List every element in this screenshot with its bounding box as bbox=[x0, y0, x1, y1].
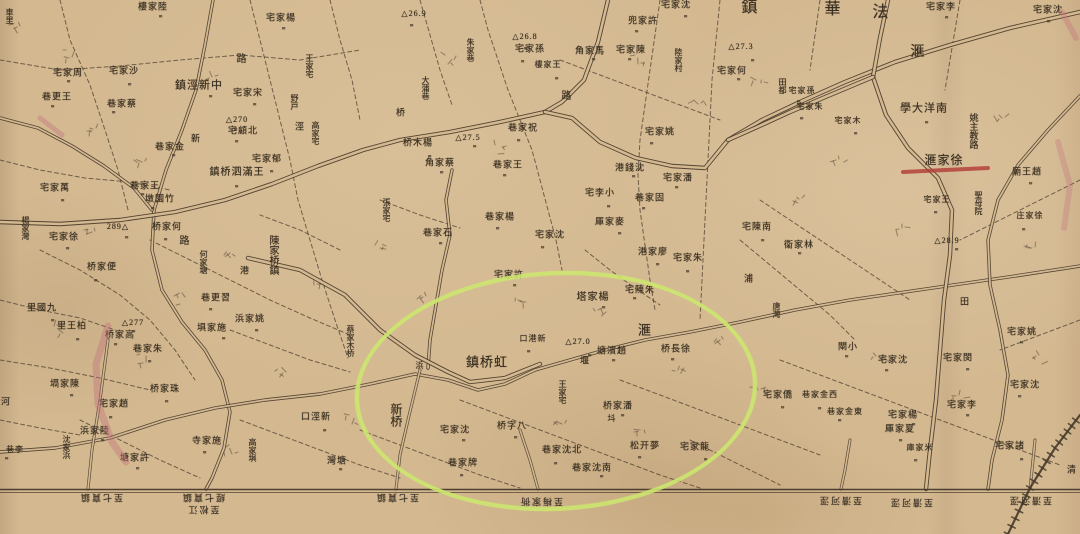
map-label: 宅家王 bbox=[924, 196, 951, 204]
map-label: 宅家朱 bbox=[673, 254, 703, 263]
map-label: 巷家固 bbox=[635, 194, 665, 203]
map-label: 巷家金 bbox=[155, 143, 185, 152]
map-label: 沈家浜 bbox=[62, 435, 70, 459]
map-label: 庄家徐 bbox=[1017, 212, 1044, 220]
map-label: 巷更習 bbox=[201, 294, 231, 303]
map-label: 宅家徐 bbox=[49, 233, 79, 242]
map-label: 桥家潘 bbox=[603, 402, 633, 411]
map-label: 巷更王 bbox=[42, 93, 72, 102]
map-label: 閘小 bbox=[838, 343, 858, 352]
map-label: 宅家許 bbox=[494, 271, 524, 280]
map-label: 巷家石 bbox=[423, 229, 453, 238]
map-label: 里王柏 bbox=[57, 322, 87, 331]
map-label: 港家廖 bbox=[638, 248, 668, 257]
map-label: △26.9 bbox=[401, 10, 426, 18]
map-label: 宅家陳 bbox=[616, 46, 646, 55]
map-scan: 車里樓家陸宅家楊△26.9宅家孫樓家王角家馬宅家陳兜家許宅家沈陸家村鎮華法宅家李… bbox=[0, 0, 1080, 534]
map-label: 庫家米 bbox=[907, 444, 934, 452]
map-label: 華 bbox=[824, 2, 841, 18]
map-label: 巷家王 bbox=[130, 182, 160, 191]
map-label: 王家宅 bbox=[558, 380, 566, 404]
map-label: 桥 bbox=[396, 109, 406, 118]
map-label: 學大洋南 bbox=[900, 104, 948, 115]
map-label: 宅家僑 bbox=[763, 391, 793, 400]
map-label: 巷李 bbox=[6, 446, 24, 454]
map-label: 鎮 bbox=[741, 0, 758, 16]
map-label: 新 bbox=[191, 135, 201, 144]
map-label: 鎮涇新中 bbox=[175, 81, 223, 92]
map-label: 宅家沈 bbox=[878, 356, 908, 365]
map-label: 清 bbox=[1067, 466, 1077, 475]
margin-destination-label: 至松江 bbox=[186, 505, 219, 514]
map-label: 塥家陳 bbox=[50, 380, 80, 389]
map-label: 王家宅 bbox=[305, 54, 313, 78]
map-label: 宅家萬 bbox=[40, 184, 70, 193]
map-label: 宅家趙 bbox=[99, 400, 129, 409]
map-label: 車里 bbox=[5, 8, 13, 24]
map-label: 厙家夏 bbox=[885, 425, 915, 434]
map-label: 何家塘 bbox=[199, 250, 207, 274]
map-label: 松开夢 bbox=[630, 442, 660, 451]
map-label: 宅家沈 bbox=[535, 231, 565, 240]
margin-destination-label: 經七寶鎮 bbox=[181, 493, 225, 502]
map-label: 巷家沈北 bbox=[542, 446, 582, 455]
map-label: 樓家陸 bbox=[138, 3, 168, 12]
map-label: 塔家楊 bbox=[577, 293, 610, 303]
map-label: 宅李小 bbox=[585, 189, 615, 198]
map-label: 浜 bbox=[416, 362, 425, 370]
map-label: 路 bbox=[180, 237, 191, 247]
map-label: 田 bbox=[960, 298, 970, 307]
map-label: 宅家沈 bbox=[440, 426, 470, 435]
map-label: 宅陳南 bbox=[742, 223, 772, 232]
map-label: 宅家木 bbox=[835, 117, 862, 125]
map-label: 港錢沈 bbox=[615, 164, 645, 173]
map-label: 涇 bbox=[295, 123, 305, 132]
map-label: △277 bbox=[122, 319, 144, 327]
map-label: 鎮桥虹 bbox=[466, 356, 508, 369]
map-label: 高家宅 bbox=[311, 121, 319, 145]
map-label: 聖母院 bbox=[974, 191, 982, 215]
map-label: 樓家王 bbox=[535, 61, 562, 69]
map-label: 口港新 bbox=[520, 335, 547, 343]
map-label: 里國九 bbox=[27, 304, 57, 313]
map-label: 宅家沈 bbox=[1033, 6, 1063, 15]
map-label: △27.0 bbox=[565, 338, 590, 346]
map-label: 宅家沈 bbox=[661, 1, 691, 10]
map-label: 高家埧 bbox=[248, 438, 256, 462]
map-label: 浜家陸 bbox=[80, 427, 110, 436]
map-label: 朱家巷 bbox=[466, 38, 474, 62]
map-labels-layer: 車里樓家陸宅家楊△26.9宅家孫樓家王角家馬宅家陳兜家許宅家沈陸家村鎮華法宅家李… bbox=[0, 0, 1080, 534]
margin-destination-label: 至七寶鎮 bbox=[375, 493, 419, 502]
map-label: 㘰 bbox=[608, 415, 617, 423]
map-label: 巷家金西 bbox=[802, 391, 838, 399]
map-label: 宅家龍 bbox=[680, 443, 710, 452]
map-label: 巷家朱 bbox=[133, 345, 163, 354]
map-label: 角家馬 bbox=[575, 47, 605, 56]
map-label: 宅陳朱 bbox=[625, 286, 655, 295]
map-label: 宅家郁 bbox=[252, 155, 282, 164]
map-label: 巷家蔡 bbox=[107, 100, 137, 109]
map-label: 唐灣 bbox=[772, 302, 780, 318]
map-label: 宅家李 bbox=[947, 401, 977, 410]
map-label: 浜家姚 bbox=[235, 315, 265, 324]
map-label: 塘濱趙 bbox=[597, 347, 627, 356]
map-label: 宅家楊 bbox=[888, 411, 918, 420]
map-label: 巷家牌 bbox=[448, 459, 478, 468]
map-label: 宅家楊 bbox=[266, 14, 296, 23]
map-label: 巷家沈南 bbox=[572, 464, 612, 473]
map-label: 浦 bbox=[744, 275, 754, 284]
map-label: 巷家楊 bbox=[485, 213, 515, 222]
map-label: 兜家許 bbox=[628, 17, 658, 26]
map-label: 宅家姚 bbox=[645, 128, 675, 137]
map-label: 宅家宋 bbox=[233, 89, 263, 98]
map-label: 宅家李 bbox=[926, 3, 956, 12]
map-label: 陳家桥鎮 bbox=[267, 235, 277, 275]
map-label: 滙 bbox=[638, 324, 652, 337]
map-label: 289△ bbox=[107, 223, 129, 231]
map-label: 埧家施 bbox=[197, 324, 227, 333]
map-label: 灣塘 bbox=[327, 457, 347, 466]
map-label: 宅家孫 bbox=[515, 45, 545, 54]
map-label: 田都 bbox=[778, 78, 786, 94]
map-label: 宅家潘 bbox=[663, 174, 693, 183]
map-label: 塘家許 bbox=[120, 454, 150, 463]
map-label: 桥家便 bbox=[87, 263, 117, 272]
map-label: 宅家姚 bbox=[1007, 328, 1037, 337]
map-label: 河 bbox=[1, 398, 11, 407]
map-label: 宅顧北 bbox=[228, 127, 258, 136]
map-label: 野戸 bbox=[290, 94, 298, 110]
map-label: 口涇新 bbox=[301, 413, 331, 422]
margin-destination-label: 至七寶鎮 bbox=[79, 493, 123, 502]
map-label: 宅家沙 bbox=[109, 67, 139, 76]
map-label: △27.5 bbox=[455, 134, 480, 142]
map-label: 張家宅 bbox=[382, 198, 390, 222]
map-label: 宅家孫 bbox=[789, 87, 816, 95]
map-label: 滙 bbox=[911, 46, 926, 60]
map-label: 宅家何 bbox=[717, 67, 747, 76]
margin-destination-label: 至漕河涇 bbox=[1008, 496, 1052, 505]
margin-destination-label: 至漕河涇 bbox=[818, 496, 862, 505]
map-label: △28.9 bbox=[934, 237, 959, 245]
map-label: 衞家林 bbox=[784, 241, 814, 250]
map-label: 港 bbox=[240, 267, 250, 276]
margin-destination-label: 至梅家衖 bbox=[519, 497, 563, 506]
map-label: 桥木楊 bbox=[403, 139, 433, 148]
map-label: 角家蔡 bbox=[425, 159, 455, 168]
map-label: 巷家祝 bbox=[508, 124, 538, 133]
map-label: 堰 bbox=[580, 357, 590, 366]
map-label: 滙家徐 bbox=[924, 154, 963, 166]
map-label: 桥字八 bbox=[497, 422, 527, 431]
map-label: △270 bbox=[226, 116, 248, 124]
map-label: △26.8 bbox=[512, 33, 537, 41]
map-label: 桥長徐 bbox=[661, 345, 691, 354]
map-label: 桥家高 bbox=[105, 331, 135, 340]
map-label: 廟王趙 bbox=[1012, 168, 1042, 177]
map-label: 巷家金東 bbox=[827, 408, 863, 416]
map-label: 姚主教路 bbox=[969, 113, 978, 149]
map-label: 楊家灣 bbox=[21, 216, 29, 240]
map-label: 宅家朱 bbox=[797, 103, 824, 111]
map-label: 路 bbox=[237, 55, 248, 65]
map-label: 鎮桥泗滿王 bbox=[210, 168, 265, 178]
map-label: 宅家閔 bbox=[943, 354, 973, 363]
margin-destination-label: 至漕河涇 bbox=[889, 498, 933, 507]
map-label: △27.3 bbox=[728, 43, 753, 51]
map-label: 蔡家木桥 bbox=[346, 325, 354, 357]
map-label: 厙家麥 bbox=[595, 218, 625, 227]
map-label: 路 bbox=[562, 92, 573, 102]
map-label: 大蒲巷 bbox=[421, 76, 429, 100]
map-label: 寺家施 bbox=[192, 437, 222, 446]
map-label: 墩園竹 bbox=[145, 195, 175, 204]
map-label: 陸家村 bbox=[674, 48, 682, 72]
map-label: 宅家諸 bbox=[995, 442, 1025, 451]
map-label: 法 bbox=[872, 5, 889, 21]
map-label: 桥家何 bbox=[152, 223, 182, 232]
map-label: 巷家王 bbox=[493, 161, 523, 170]
map-label: 宅家沈 bbox=[1010, 381, 1040, 390]
map-label: 宅家周 bbox=[53, 69, 83, 78]
map-label: 桥家珠 bbox=[150, 385, 180, 394]
map-label: 新桥 bbox=[390, 403, 402, 427]
